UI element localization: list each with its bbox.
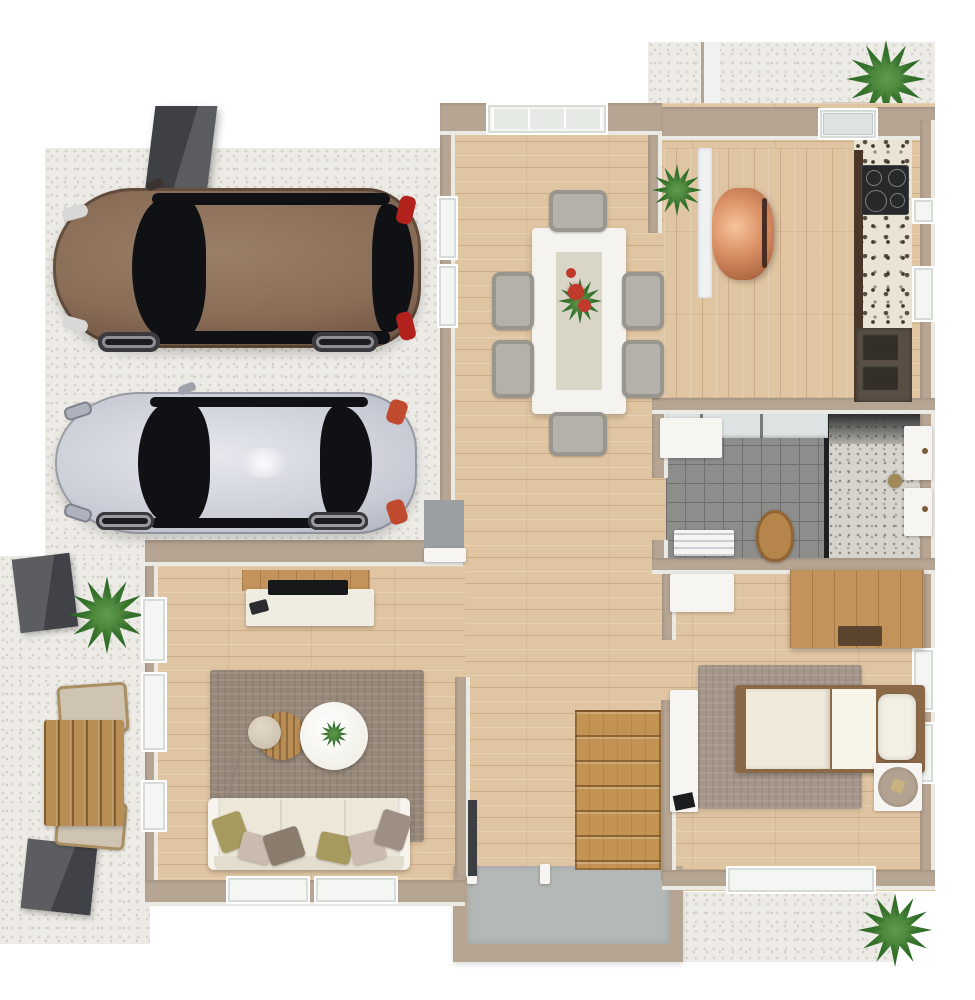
bathroom-left-wall-lower — [652, 540, 668, 560]
table-runner — [556, 252, 602, 390]
dining-chair-top — [549, 190, 607, 232]
wardrobe-desk-items — [838, 626, 882, 646]
bed-duvet — [746, 689, 830, 769]
sink-basin-2 — [862, 366, 898, 390]
coupe-wheel-front — [96, 512, 154, 530]
shower-drain-fitting — [888, 474, 902, 488]
centerpiece-flower-2 — [578, 299, 591, 312]
coupe-wheel-rear — [308, 512, 368, 530]
bed-pillow — [878, 694, 916, 760]
suv-windshield — [132, 198, 206, 338]
vestibule-floor — [467, 866, 669, 944]
living-entry-door — [468, 800, 477, 876]
dining-top-window-glass — [492, 109, 602, 129]
fixture-knob-1 — [922, 448, 928, 454]
centerpiece-flower-3 — [566, 268, 576, 278]
fixture-knob-2 — [922, 506, 928, 512]
dining-chair-left-2 — [492, 340, 534, 398]
coupe-windshield — [138, 402, 210, 524]
suv-wheel-front — [98, 332, 160, 352]
dining-chair-bottom — [549, 412, 607, 456]
cooktop-burner-4 — [890, 193, 905, 208]
copper-chair-slit — [762, 198, 767, 268]
living-door-sill — [424, 548, 466, 562]
suv-body — [53, 188, 421, 348]
dining-left-window-2 — [437, 264, 458, 328]
dining-entry-divider — [648, 135, 662, 233]
bathroom-wall-fixture-1 — [904, 426, 932, 480]
planter-cube-top — [12, 553, 79, 634]
centerpiece-flower-1 — [568, 284, 584, 300]
bedroom-dresser — [670, 574, 734, 612]
outdoor-table — [44, 720, 124, 826]
toilet-wooden-lid — [756, 510, 794, 562]
living-top-wall — [145, 540, 463, 566]
dining-chair-right-2 — [622, 340, 664, 398]
sink-basin-1 — [862, 334, 898, 360]
kitchen-stub-wall — [698, 148, 712, 298]
cooktop-burner-3 — [865, 190, 887, 212]
arc-lamp-shade — [248, 716, 281, 749]
bathroom-shelf-tick-2 — [760, 414, 763, 438]
cooktop-burner-1 — [866, 170, 882, 186]
floor-plan-render — [0, 0, 975, 1000]
coupe-roof-highlight — [236, 448, 292, 478]
living-left-window-2 — [141, 672, 167, 752]
cooktop-burner-2 — [888, 169, 906, 187]
staircase — [575, 710, 661, 870]
planter-cube-bottom — [21, 839, 98, 916]
living-left-window-1 — [141, 597, 167, 663]
suv-side-glass-top — [152, 193, 390, 205]
dining-left-window-1 — [437, 196, 458, 260]
bedroom-bottom-window — [726, 866, 876, 894]
dining-chair-right-1 — [622, 272, 664, 330]
bathroom-vanity — [660, 418, 722, 458]
living-left-window-3 — [141, 780, 167, 832]
living-bottom-window-2 — [314, 876, 398, 904]
bed-sheet — [832, 689, 876, 769]
kitchen-right-window-2 — [912, 266, 935, 322]
vestibule-door-jamb-mid — [540, 864, 550, 884]
living-door-mat — [424, 500, 464, 554]
bottom-right-patio-pavers — [648, 892, 893, 962]
bathroom-wall-fixture-2 — [904, 488, 932, 536]
bathroom-radiator — [674, 530, 734, 556]
living-bottom-window-1 — [226, 876, 310, 904]
tv — [268, 580, 348, 595]
kitchen-top-wall-left — [662, 107, 820, 140]
suv-wheel-rear — [312, 332, 378, 352]
kitchen-right-window-1 — [912, 198, 935, 224]
kitchen-floor-wood — [664, 148, 856, 412]
front-door-leaf — [823, 113, 873, 135]
coupe-side-glass-top — [150, 397, 368, 407]
dining-chair-left-1 — [492, 272, 534, 330]
